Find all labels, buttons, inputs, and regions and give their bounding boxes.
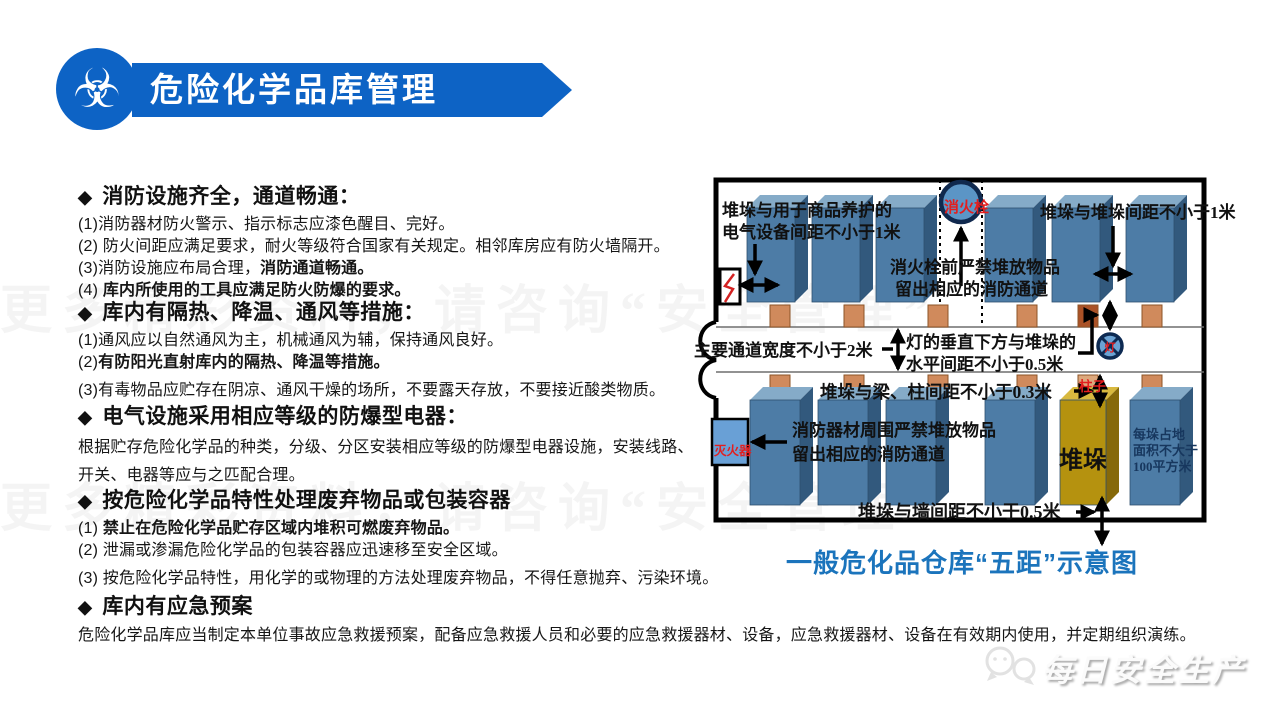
- stack-gold-box: [1060, 387, 1119, 505]
- extinguisher-label: 灭火器: [713, 444, 752, 458]
- hydrant-front-label: 留出相应的消防通道: [895, 279, 1048, 299]
- section-heading-text: 库内有应急预案: [102, 595, 253, 618]
- electric-distance-label: 电气设备间距不小于1米: [722, 222, 901, 242]
- list-item: (3)消防设施应布局合理，消防通道畅通。: [78, 258, 728, 280]
- fire-equipment-clearance-label: 留出相应的消防通道: [792, 444, 945, 464]
- electric-device-box: [720, 269, 740, 304]
- pillar-square: [928, 305, 948, 327]
- diamond-bullet-icon: ◆: [78, 303, 92, 323]
- beam-pillar-distance-label: 堆垛与梁、柱间距不小于0.3米: [820, 382, 1052, 402]
- diamond-bullet-icon: ◆: [78, 187, 92, 207]
- pillar-square: [1142, 305, 1162, 327]
- title-banner: 危险化学品库管理: [132, 63, 572, 117]
- brand-watermark: 每日安全生产: [980, 642, 1246, 692]
- slide: 更多精彩资料，请咨询“安全管理” 更多精彩资料，请咨询“安全管理” ☣ 危险化学…: [0, 0, 1280, 720]
- lamp-distance-label: 水平间距不小于0.5米: [906, 354, 1064, 374]
- section-heading: ◆电气设施采用相应等级的防爆型电器：: [78, 400, 703, 430]
- main-aisle-width-label: 主要通道宽度不小于2米: [694, 340, 873, 360]
- wall-distance-label: 堆垛与墙间距不小于0.5米: [858, 501, 1061, 522]
- section-electrical: ◆电气设施采用相应等级的防爆型电器： 根据贮存危险化学品的种类，分级、分区安装相…: [78, 400, 703, 490]
- electric-distance-label: 堆垛与用于商品养护的: [722, 200, 892, 220]
- section-heading: ◆库内有应急预案: [78, 590, 1223, 620]
- wall-break-symbol: [700, 322, 716, 398]
- pillar-square: [1017, 305, 1037, 327]
- list-item: (2)有防阳光直射库内的隔热、降温等措施。: [78, 352, 728, 374]
- diamond-bullet-icon: ◆: [78, 597, 92, 617]
- brand-watermark-text: 每日安全生产: [1042, 645, 1246, 690]
- section-emergency-plan: ◆库内有应急预案 危险化学品库应当制定本单位事故应急救援预案，配备应急救援人员和…: [78, 590, 1223, 648]
- stack-stack-distance-label: 堆垛与堆垛间距不小于1米: [1040, 202, 1236, 222]
- warehouse-five-distance-diagram: 灭火器 消火栓 灯: [690, 172, 1250, 582]
- section-heading-text: 电气设施采用相应等级的防爆型电器：: [102, 405, 468, 428]
- page-title: 危险化学品库管理: [132, 63, 572, 117]
- diamond-bullet-icon: ◆: [78, 407, 92, 427]
- lamp-distance-label: 灯的垂直下方与堆垛的: [906, 332, 1076, 352]
- storage-stack-box: [985, 387, 1048, 505]
- stack-area-label: 每垛占地: [1133, 427, 1185, 442]
- section-heading-text: 消防设施齐全，通道畅通：: [102, 185, 360, 208]
- list-item: (2) 泄漏或渗漏危险化学品的包装容器应迅速移至安全区域。: [78, 540, 728, 562]
- list-item: (2) 防火间距应满足要求，耐火等级符合国家有关规定。相邻库房应有防火墙隔开。: [78, 236, 728, 258]
- gold-stack-label: 堆垛: [1059, 447, 1107, 474]
- list-item: (3) 按危险化学品特性，用化学的或物理的方法处理废弃物品，不得任意抛弃、污染环…: [78, 568, 728, 590]
- section-heading-text: 库内有隔热、降温、通风等措施：: [102, 301, 425, 324]
- fire-equipment-clearance-label: 消防器材周围严禁堆放物品: [792, 420, 996, 440]
- biohazard-icon: ☣: [56, 48, 138, 130]
- hydrant-label: 消火栓: [944, 198, 989, 216]
- section-body: 根据贮存危险化学品的种类，分级、分区安装相应等级的防爆型电器设施，安装线路、开关…: [78, 434, 703, 490]
- pillar-square: [844, 305, 864, 327]
- lamp-char: 灯: [1105, 340, 1116, 354]
- list-item: (3)有毒物品应贮存在阴凉、通风干燥的场所，不要露天存放，不要接近酸类物质。: [78, 380, 728, 402]
- pillar-square: [770, 305, 790, 327]
- fire-extinguisher-box: [712, 419, 748, 465]
- list-item: (1)消防器材防火警示、指示标志应漆色醒目、完好。: [78, 214, 728, 236]
- list-item: (1) 禁止在危险化学品贮存区域内堆积可燃废弃物品。: [78, 518, 728, 540]
- section-heading: ◆消防设施齐全，通道畅通：: [78, 180, 728, 210]
- lamp-icon: 灯: [1098, 334, 1122, 358]
- section-heading: ◆库内有隔热、降温、通风等措施：: [78, 296, 728, 326]
- section-ventilation: ◆库内有隔热、降温、通风等措施： (1)通风应以自然通风为主，机械通风为辅，保持…: [78, 296, 728, 402]
- diamond-bullet-icon: ◆: [78, 491, 92, 511]
- diagram-caption: 一般危化品仓库“五距”示意图: [786, 548, 1138, 578]
- section-heading-text: 按危险化学品特性处理废弃物品或包装容器: [102, 489, 511, 512]
- section-heading: ◆按危险化学品特性处理废弃物品或包装容器: [78, 484, 728, 514]
- section-waste-disposal: ◆按危险化学品特性处理废弃物品或包装容器 (1) 禁止在危险化学品贮存区域内堆积…: [78, 484, 728, 590]
- stack-area-label: 100平方米: [1133, 459, 1193, 474]
- stack-area-label: 面积不大于: [1133, 443, 1198, 458]
- list-item: (1)通风应以自然通风为主，机械通风为辅，保持通风良好。: [78, 330, 728, 352]
- pillar-label: 柱子: [1079, 378, 1107, 394]
- wechat-chat-bubbles-icon: [980, 642, 1042, 692]
- hydrant-front-label: 消火栓前严禁堆放物品: [890, 257, 1060, 277]
- section-fire-facilities: ◆消防设施齐全，通道畅通： (1)消防器材防火警示、指示标志应漆色醒目、完好。 …: [78, 180, 728, 302]
